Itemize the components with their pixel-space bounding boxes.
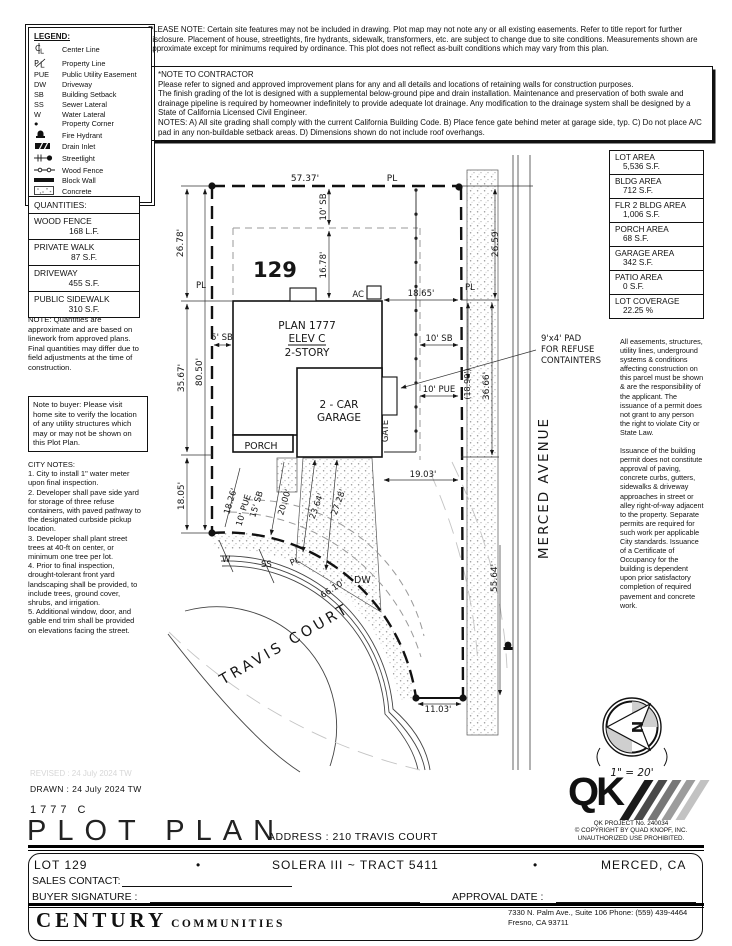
dim-right-top: 26.59' bbox=[491, 229, 501, 257]
table-row: LOT AREA5,536 S.F. bbox=[610, 151, 703, 175]
office-city: Fresno, CA 93711 bbox=[508, 918, 687, 928]
plan-line1: PLAN 1777 bbox=[278, 320, 336, 332]
legend-item-pue: PUEPublic Utility Easement bbox=[34, 70, 146, 80]
legend-item-wood-fence: Wood Fence bbox=[34, 166, 146, 177]
streetlight-icon bbox=[34, 153, 58, 166]
builder-name: CENTURY bbox=[36, 908, 167, 932]
bullet: • bbox=[196, 858, 201, 872]
ac-pad bbox=[367, 286, 381, 299]
roof-bump bbox=[290, 288, 316, 301]
lot-label: LOT 129 bbox=[34, 858, 87, 872]
quantities-table: QUANTITIES: WOOD FENCE168 L.F. PRIVATE W… bbox=[28, 196, 140, 318]
ac-label: AC bbox=[352, 290, 364, 300]
legend-item-centerline: CL Center Line bbox=[34, 43, 146, 57]
refuse-callout-2: FOR REFUSE bbox=[541, 345, 594, 355]
wood-fence-icon bbox=[34, 166, 58, 177]
note-to-contractor-title: *NOTE TO CONTRACTOR bbox=[158, 70, 706, 80]
please-note: PLEASE NOTE: Certain site features may n… bbox=[148, 25, 704, 54]
builder-logo: CENTURY COMMUNITIES bbox=[36, 908, 285, 933]
easement-para-2: Issuance of the building permit does not… bbox=[620, 446, 705, 610]
city-notes-body: 1. City to install 1" water meter upon f… bbox=[28, 469, 142, 635]
gate-label: GATE bbox=[381, 420, 391, 442]
legend-item-ss: SSSewer Lateral bbox=[34, 100, 146, 110]
dim-sb10-right: 10' SB bbox=[425, 334, 452, 344]
easement-para-1: All easements, structures, utility lines… bbox=[620, 337, 705, 437]
legend-item-drain: Drain Inlet bbox=[34, 142, 146, 153]
table-row: PRIVATE WALK87 S.F. bbox=[29, 240, 139, 266]
buyer-signature-label: BUYER SIGNATURE : bbox=[32, 891, 137, 903]
revised-line: REVISED : 24 July 2024 TW bbox=[30, 769, 132, 778]
divider bbox=[28, 845, 704, 848]
dim-left-total: 80.50' bbox=[195, 358, 205, 386]
divider bbox=[28, 903, 704, 906]
block-wall-icon bbox=[34, 176, 58, 186]
merced-avenue-label: MERCED AVENUE bbox=[536, 417, 552, 559]
dim-top: 57.37' bbox=[291, 174, 319, 184]
w-label: W bbox=[222, 555, 231, 565]
legend-item-block-wall: Block Wall bbox=[34, 176, 146, 186]
easement-notes: All easements, structures, utility lines… bbox=[620, 337, 705, 619]
legend-item-corner: ●Property Corner bbox=[34, 119, 146, 129]
legend-item-sb: SBBuilding Setback bbox=[34, 90, 146, 100]
dim-left3: 18.05' bbox=[177, 482, 187, 510]
qk-logo-letters: QK bbox=[568, 770, 622, 815]
dim-1103: 11.03' bbox=[425, 705, 452, 715]
dim-1890: (18.90') bbox=[463, 368, 472, 399]
legend-title: LEGEND: bbox=[34, 32, 146, 42]
porch-label: PORCH bbox=[244, 441, 277, 452]
table-row: BLDG AREA712 S.F. bbox=[610, 175, 703, 199]
garage-line2: GARAGE bbox=[317, 412, 361, 424]
dw-label: DW bbox=[354, 575, 371, 586]
table-row: PORCH AREA68 S.F. bbox=[610, 223, 703, 247]
bullet: • bbox=[533, 858, 538, 872]
office-address: 7330 N. Palm Ave., Suite 106 Phone: (559… bbox=[508, 908, 687, 918]
dim-1903: 19.03' bbox=[410, 470, 437, 480]
city-notes-title: CITY NOTES: bbox=[28, 460, 142, 469]
sales-contact-label: SALES CONTACT: bbox=[32, 875, 121, 887]
office-info: 7330 N. Palm Ave., Suite 106 Phone: (559… bbox=[508, 908, 687, 927]
table-row: PUBLIC SIDEWALK310 S.F. bbox=[29, 292, 139, 317]
dim-sb5: 5' SB bbox=[211, 333, 233, 343]
dim-2000: 20.00' bbox=[276, 488, 293, 516]
travis-court-label: TRAVIS COURT bbox=[216, 601, 352, 689]
garage-line1: 2 - CAR bbox=[320, 399, 359, 411]
table-row: LOT COVERAGE22.25 % bbox=[610, 295, 703, 318]
property-corner-icon: ● bbox=[34, 119, 58, 129]
legend-item-hydrant: Fire Hydrant bbox=[34, 129, 146, 142]
sales-contact-line[interactable] bbox=[122, 876, 292, 887]
legend-box: LEGEND: CL Center Line PL Property Line … bbox=[28, 27, 152, 203]
table-row: FLR 2 BLDG AREA1,006 S.F. bbox=[610, 199, 703, 223]
qk-copyright: © COPYRIGHT BY QUAD KNOPF, INC. bbox=[556, 827, 706, 834]
legend-item-property-line: PL Property Line bbox=[34, 57, 146, 71]
dim-1678: 16.78' bbox=[319, 252, 329, 279]
dim-1865: 18.65' bbox=[408, 289, 435, 299]
legend-item-streetlight: Streetlight bbox=[34, 153, 146, 166]
quantities-note: NOTE: Quantities are approximate and are… bbox=[28, 315, 140, 373]
merced-avenue-lines bbox=[513, 155, 530, 770]
drawn-line: DRAWN : 24 July 2024 TW bbox=[30, 784, 142, 794]
pl-label-top: PL bbox=[387, 174, 397, 184]
dim-pue10-right: 10' PUE bbox=[423, 385, 456, 395]
qk-logo: QK QK PROJECT No. 240034 © COPYRIGHT BY … bbox=[556, 778, 706, 844]
svg-text:L: L bbox=[40, 47, 44, 54]
centerline-icon: CL bbox=[34, 43, 58, 57]
approval-date-line[interactable] bbox=[556, 892, 696, 903]
dim-left2: 35.67' bbox=[177, 364, 187, 392]
buyer-signature-line[interactable] bbox=[150, 892, 420, 903]
plan-line3: 2-STORY bbox=[285, 347, 330, 359]
address-line: ADDRESS : 210 TRAVIS COURT bbox=[268, 831, 438, 843]
qk-unauthorized: UNAUTHORIZED USE PROHIBITED. bbox=[556, 835, 706, 842]
dim-3666: 36.66' bbox=[482, 372, 492, 400]
plot-plan-sheet: { "please_note": "PLEASE NOTE: Certain s… bbox=[0, 0, 732, 946]
quantities-title: QUANTITIES: bbox=[29, 197, 139, 214]
north-arrow: N bbox=[603, 698, 661, 756]
city-notes: CITY NOTES: 1. City to install 1" water … bbox=[28, 460, 142, 635]
dim-sb15: 15' SB bbox=[248, 490, 266, 519]
fire-hydrant-icon bbox=[34, 129, 58, 142]
divider bbox=[28, 850, 704, 851]
dim-sb10-top: 10' SB bbox=[319, 193, 329, 220]
refuse-path-concrete bbox=[277, 458, 297, 492]
tract-label: SOLERA III ~ TRACT 5411 bbox=[272, 858, 439, 872]
table-row: GARAGE AREA342 S.F. bbox=[610, 247, 703, 271]
city-label: MERCED, CA bbox=[601, 858, 686, 872]
page-title: PLOT PLAN bbox=[27, 815, 285, 848]
pl-label-left: PL bbox=[196, 281, 206, 291]
dim-5564: 55.64' bbox=[490, 564, 500, 592]
house-footprint bbox=[233, 286, 397, 457]
buyer-note-box: Note to buyer: Please visit home site to… bbox=[28, 396, 148, 452]
table-row: WOOD FENCE168 L.F. bbox=[29, 214, 139, 240]
dim-1826: 18.26' bbox=[222, 487, 239, 515]
approval-date-label: APPROVAL DATE : bbox=[452, 891, 543, 903]
refuse-pad bbox=[382, 377, 397, 415]
north-n-label: N bbox=[628, 721, 646, 734]
note-to-contractor-body: Please refer to signed and approved impr… bbox=[158, 80, 706, 138]
refuse-callout-1: 9'x4' PAD bbox=[541, 334, 582, 344]
area-table: LOT AREA5,536 S.F. BLDG AREA712 S.F. FLR… bbox=[609, 150, 704, 319]
ss-label: SS bbox=[261, 560, 272, 570]
lot-number: 129 bbox=[253, 258, 297, 282]
refuse-callout-3: CONTAINTERS bbox=[541, 356, 601, 366]
property-line-icon: PL bbox=[34, 57, 58, 71]
dim-left1: 26.78' bbox=[176, 229, 186, 257]
table-row: PATIO AREA0 S.F. bbox=[610, 271, 703, 295]
legend-item-dw: DWDriveway bbox=[34, 80, 146, 90]
pl-label-right: PL bbox=[465, 283, 475, 293]
drain-inlet-icon bbox=[34, 142, 58, 153]
note-to-contractor-box: *NOTE TO CONTRACTOR Please refer to sign… bbox=[151, 66, 713, 141]
table-row: DRIVEWAY455 S.F. bbox=[29, 266, 139, 292]
builder-name-2: COMMUNITIES bbox=[171, 918, 285, 930]
legend-item-w: WWater Lateral bbox=[34, 110, 146, 120]
plan-line2: ELEV C bbox=[289, 333, 326, 345]
